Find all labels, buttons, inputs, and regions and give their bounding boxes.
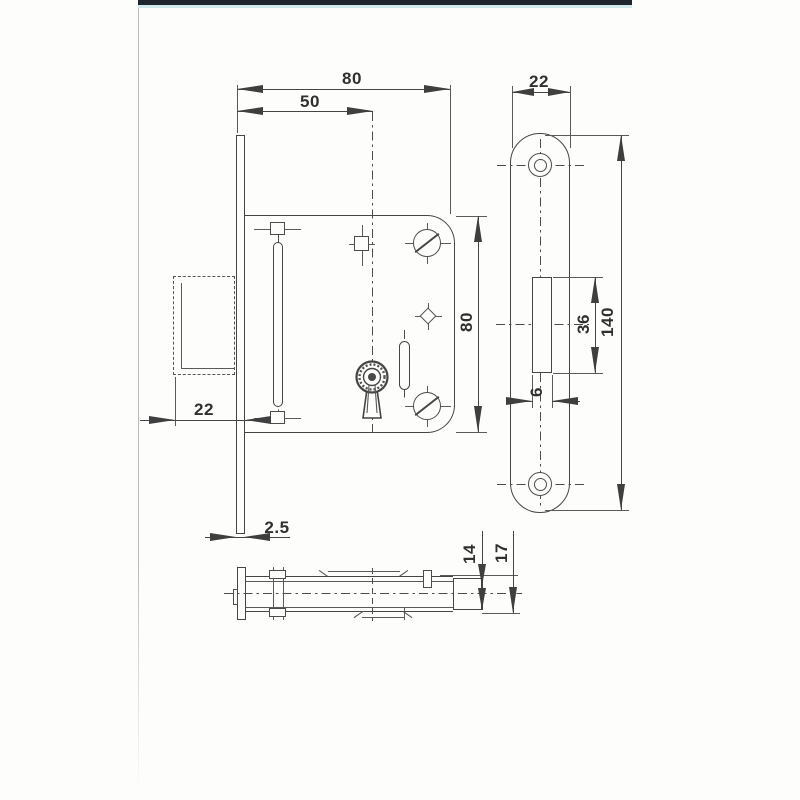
dim-label-cutout-length: 36: [575, 304, 593, 344]
post-nub-bottom: [269, 608, 286, 617]
bolt-cutout: [532, 277, 552, 373]
arrowhead: [210, 533, 236, 541]
lock-technical-drawing: 80 50 80 22 2.5: [0, 0, 800, 800]
bump-bottom-line: [362, 617, 404, 618]
arrowhead: [474, 406, 482, 432]
arrowhead: [617, 484, 625, 510]
case-inner-line: [246, 581, 453, 582]
cross-screw: [354, 236, 369, 251]
arrowhead: [509, 587, 517, 613]
dim-label-cutout-depth: 6: [528, 372, 546, 412]
arrowhead: [474, 216, 482, 242]
long-slot: [273, 242, 283, 407]
post-nub-top: [269, 570, 286, 579]
arrowhead: [237, 85, 263, 93]
keyhole-axis: [372, 568, 373, 621]
arrowhead: [591, 277, 599, 303]
dim-label-total-thickness: 17: [493, 533, 511, 573]
dim-label-total-width: 80: [332, 70, 372, 88]
arrowhead: [424, 85, 450, 93]
dim-label-plate-width: 22: [519, 73, 559, 91]
top-bar-accent: [138, 5, 632, 8]
square-screw-bottom: [270, 411, 285, 424]
bump-top-line: [328, 571, 400, 572]
deadbolt-inner-line: [181, 368, 235, 369]
arrowhead: [237, 107, 263, 115]
dim-label-bolt-offset: 22: [184, 401, 224, 419]
dim-label-case-height: 80: [458, 302, 476, 342]
arrowhead: [552, 397, 578, 405]
extension-line: [450, 85, 451, 214]
arrowhead: [149, 416, 175, 424]
arrowhead: [617, 135, 625, 161]
deadbolt-hidden-outline: [173, 276, 235, 375]
dimension-line: [478, 216, 479, 432]
plate-screw-hole-bottom-inner: [534, 478, 547, 491]
extension-line: [456, 432, 487, 433]
arrowhead: [347, 107, 373, 115]
bolt-end-tab: [233, 589, 238, 605]
page-edge-line: [138, 0, 139, 795]
dim-label-faceplate-thickness: 2.5: [257, 519, 297, 537]
lever-slot: [399, 341, 410, 390]
dimension-line: [237, 89, 450, 90]
hub-post: [423, 570, 432, 588]
arrowhead: [245, 416, 271, 424]
extension-line: [456, 216, 487, 217]
dim-label-backset: 50: [290, 93, 330, 111]
deadbolt-inner-line: [181, 283, 182, 369]
arrowhead: [591, 347, 599, 373]
plate-screw-hole-top-inner: [534, 159, 547, 172]
square-screw-top: [270, 222, 285, 235]
arrowhead: [478, 588, 486, 610]
dim-label-case-thickness: 14: [461, 534, 479, 574]
dim-label-plate-length: 140: [599, 302, 617, 342]
dimension-line: [621, 135, 622, 510]
keyhole-icon: [350, 355, 394, 425]
